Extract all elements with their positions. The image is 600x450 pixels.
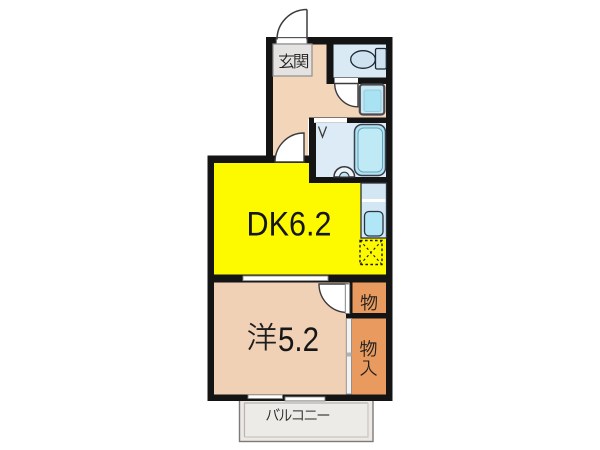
svg-text:DK6.2: DK6.2: [247, 206, 332, 244]
svg-text:5.2: 5.2: [278, 321, 319, 359]
